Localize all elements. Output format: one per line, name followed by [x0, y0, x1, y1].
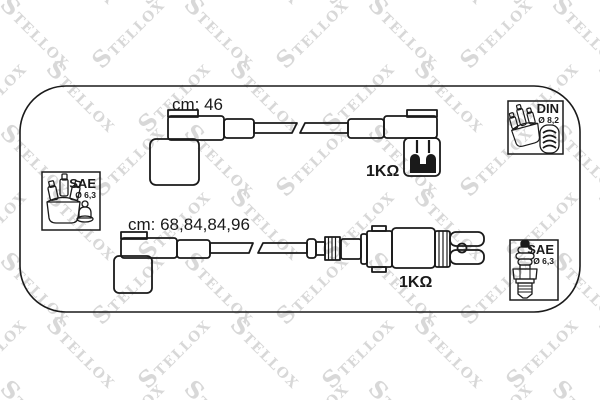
- cable1-resistance-label: 1KΩ: [366, 163, 399, 180]
- distributor-sae-standard: SAE: [69, 176, 96, 191]
- spark-plug-sae-badge: SAE Ø 6,3: [510, 240, 558, 300]
- distributor-sae-badge: SAE Ø 6,3: [42, 172, 100, 230]
- fork-terminal-icon: [450, 232, 484, 246]
- cable1-left-ferrule: [224, 119, 254, 138]
- spark-plug-sae-diameter: Ø 6,3: [533, 256, 554, 266]
- cable1-wire-left: [254, 123, 297, 133]
- coil-din-badge: DIN Ø 8,2: [506, 101, 563, 154]
- cable1-boot-connector: [150, 110, 224, 185]
- cable2-resistance-label: 1KΩ: [399, 274, 432, 291]
- fork-terminal-icon: [450, 250, 484, 264]
- coil-din-diameter: Ø 8,2: [538, 115, 559, 125]
- spark-plug-sae-standard: SAE: [527, 242, 554, 257]
- cable1-wire-right: [300, 123, 348, 133]
- cable2-wire-left: [210, 243, 253, 253]
- cable2-left-ferrule: [177, 240, 210, 258]
- diagram-canvas: cm: 46 1KΩ: [0, 0, 600, 400]
- cable2-coil-connector: [307, 226, 484, 272]
- distributor-sae-diameter: Ø 6,3: [75, 190, 96, 200]
- cable1-right-ferrule: [348, 119, 384, 138]
- cable2-boot-connector: [114, 232, 177, 293]
- ignition-coil-icon: [540, 125, 559, 153]
- plug-contact-icon: [410, 154, 436, 173]
- diagram-border: [20, 86, 580, 312]
- cable1-length-label: cm: 46: [172, 95, 223, 114]
- coil-din-standard: DIN: [537, 101, 559, 116]
- cable2-wire-right: [258, 243, 307, 253]
- cable2-length-label: cm: 68,84,84,96: [128, 215, 250, 234]
- part-diagram: STELLOXSTELLOXSTELLOXSTELLOXSTELLOXSTELL…: [0, 0, 600, 400]
